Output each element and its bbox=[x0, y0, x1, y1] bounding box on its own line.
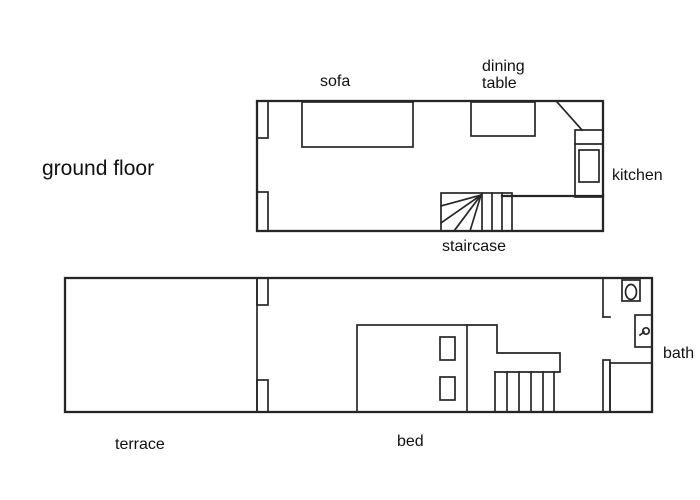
bathroom bbox=[603, 278, 652, 412]
stair-banister bbox=[467, 325, 560, 372]
dining-table-outline bbox=[471, 102, 535, 136]
label-terrace: terrace bbox=[115, 436, 165, 453]
left-wall-jamb-bottom bbox=[257, 192, 268, 231]
stair-winder-line bbox=[441, 195, 481, 223]
upper-floor-staircase bbox=[467, 325, 560, 411]
kitchen-door-swing-line bbox=[557, 102, 582, 130]
kitchen-stove-outline bbox=[579, 150, 599, 182]
label-bath: bath bbox=[663, 345, 694, 362]
pillow bbox=[440, 337, 455, 360]
sofa-outline bbox=[302, 102, 413, 147]
ground-floor-plan bbox=[257, 101, 603, 231]
label-ground-floor: ground floor bbox=[42, 157, 154, 180]
label-staircase: staircase bbox=[442, 238, 506, 255]
label-kitchen: kitchen bbox=[612, 167, 663, 184]
sink-faucet-handle bbox=[640, 332, 644, 335]
stair-winder-line bbox=[454, 195, 481, 231]
label-sofa: sofa bbox=[320, 73, 350, 90]
label-dining-table: dining table bbox=[482, 58, 525, 92]
bed-outline bbox=[357, 325, 467, 412]
stair-winder-line bbox=[470, 195, 481, 231]
floor-plan-page: ground floor sofa dining table kitchen s… bbox=[0, 0, 700, 500]
label-bed: bed bbox=[397, 433, 424, 450]
ground-floor-outer-wall bbox=[257, 101, 603, 231]
pillow bbox=[440, 377, 455, 400]
ground-floor-staircase bbox=[441, 193, 512, 231]
divider-jamb-top bbox=[257, 278, 268, 305]
upper-floor-plan bbox=[65, 278, 652, 412]
toilet-bowl bbox=[626, 285, 637, 300]
divider-jamb-bottom bbox=[257, 380, 268, 412]
shower-outline bbox=[610, 363, 652, 412]
left-wall-jamb-top bbox=[257, 101, 268, 138]
toilet-outline bbox=[622, 280, 640, 301]
bathroom-wall-bottom bbox=[603, 360, 610, 412]
upper-floor-outer-wall bbox=[65, 278, 652, 412]
